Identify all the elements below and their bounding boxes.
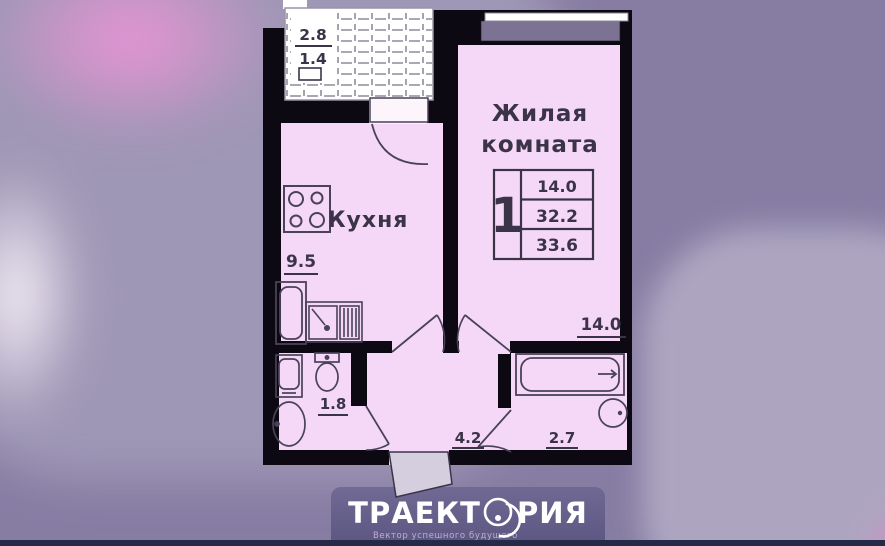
wc-area: 1.8	[320, 395, 347, 413]
wc-door-opening	[351, 406, 367, 450]
info-table-living-area: 14.0	[537, 177, 576, 196]
window-sill	[481, 21, 620, 41]
info-table-area-total: 33.6	[536, 236, 578, 256]
entrance-door-leaf	[389, 452, 452, 497]
balcony-area-lower: 1.4	[299, 50, 327, 68]
bottom-edge-bar	[0, 540, 885, 546]
info-table-area-mid: 32.2	[536, 207, 578, 227]
kitchen-label: Кухня	[328, 208, 409, 233]
balcony-area-upper: 2.8	[299, 26, 326, 44]
hallway-area: 4.2	[455, 429, 482, 447]
living-room-label-line2: комната	[481, 132, 598, 158]
floor-plan: 2.8 1.4	[0, 0, 885, 546]
bathroom-area: 2.7	[549, 429, 576, 447]
living-room-label-line1: Жилая	[492, 101, 588, 127]
window-glass	[485, 13, 628, 21]
balcony-label-backing	[291, 13, 337, 83]
kitchen-area: 9.5	[286, 252, 316, 272]
living-room-area: 14.0	[581, 315, 622, 334]
living-door-opening	[459, 341, 510, 354]
screenshot-root: ТРАЕКТ РИЯ Вектор успешного будущего 2.8…	[0, 0, 885, 546]
info-table-rooms-count: 1	[490, 188, 523, 244]
bathroom-door-opening	[498, 408, 511, 450]
balcony-door-leaf	[370, 98, 428, 122]
kitchen-door-opening	[392, 341, 443, 354]
bathroom-sink-icon	[599, 399, 627, 427]
